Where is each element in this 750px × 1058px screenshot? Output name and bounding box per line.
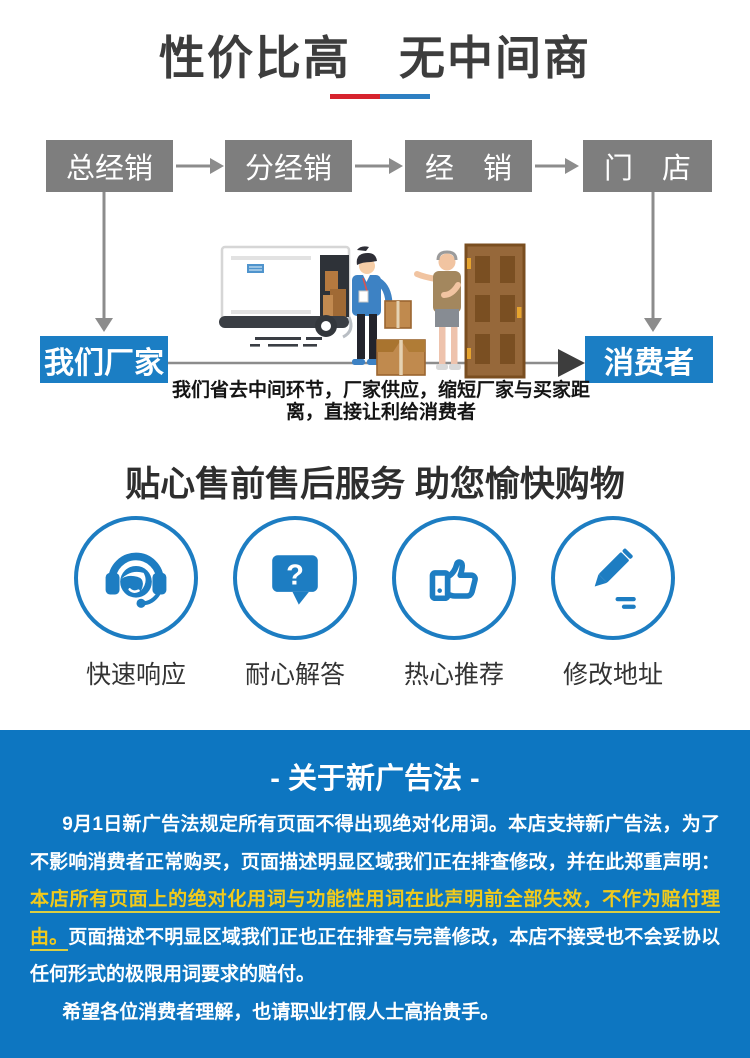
service-label-response: 快速响应 xyxy=(56,655,216,691)
flow-box-sub-distributor: 分经销 xyxy=(225,140,352,192)
services-title: 贴心售前售后服务 助您愉快购物 xyxy=(0,456,750,507)
service-circle-response xyxy=(74,516,198,640)
flow-caption-line1: 我们省去中间环节，厂家供应，缩短厂家与买家距 xyxy=(0,380,750,402)
service-label-edit-address: 修改地址 xyxy=(533,655,693,691)
question-bubble-icon: ? xyxy=(257,540,333,616)
flow-box-general-distributor: 总经销 xyxy=(46,140,173,192)
service-circle-recommend xyxy=(392,516,516,640)
service-label-answer: 耐心解答 xyxy=(215,655,375,691)
flow-box-factory: 我们厂家 xyxy=(40,336,168,383)
notice-paragraph-2: 希望各位消费者理解，也请职业打假人士高抬贵手。 xyxy=(30,994,720,1032)
notice-body: 9月1日新广告法规定所有页面不得出现绝对化用词。本店支持新广告法，为了不影响消费… xyxy=(30,806,720,1031)
notice-text-after: 页面描述不明显区域我们正也正在排查与完善修改，本店不接受也不会妥协以任何形式的极… xyxy=(30,927,720,986)
flow-caption: 我们省去中间环节，厂家供应，缩短厂家与买家距 离，直接让利给消费者 xyxy=(0,380,750,424)
promo-page: 性价比高 无中间商 xyxy=(0,0,750,1058)
headset-icon xyxy=(98,540,174,616)
thumbs-up-icon xyxy=(416,540,492,616)
question-glyph: ? xyxy=(286,559,304,591)
truck-graphic xyxy=(219,247,351,347)
flow-box-dealer: 经 销 xyxy=(405,140,532,192)
flow-box-store: 门 店 xyxy=(583,140,712,192)
door-graphic xyxy=(466,245,524,377)
big-arrowhead xyxy=(558,349,585,377)
ad-law-notice-section: - 关于新广告法 - 9月1日新广告法规定所有页面不得出现绝对化用词。本店支持新… xyxy=(0,730,750,1058)
notice-paragraph-1: 9月1日新广告法规定所有页面不得出现绝对化用词。本店支持新广告法，为了不影响消费… xyxy=(30,806,720,994)
delivery-illustration xyxy=(213,233,537,381)
service-label-recommend: 热心推荐 xyxy=(374,655,534,691)
notice-title: - 关于新广告法 - xyxy=(0,730,750,797)
notice-text-before: 9月1日新广告法规定所有页面不得出现绝对化用词。本店支持新广告法，为了不影响消费… xyxy=(30,814,720,873)
service-circle-edit-address xyxy=(551,516,675,640)
flow-box-consumer: 消费者 xyxy=(585,336,713,383)
service-circle-answer: ? xyxy=(233,516,357,640)
cardboard-boxes xyxy=(377,301,425,375)
pencil-icon xyxy=(575,540,651,616)
flow-caption-line2: 离，直接让利给消费者 xyxy=(0,402,750,424)
